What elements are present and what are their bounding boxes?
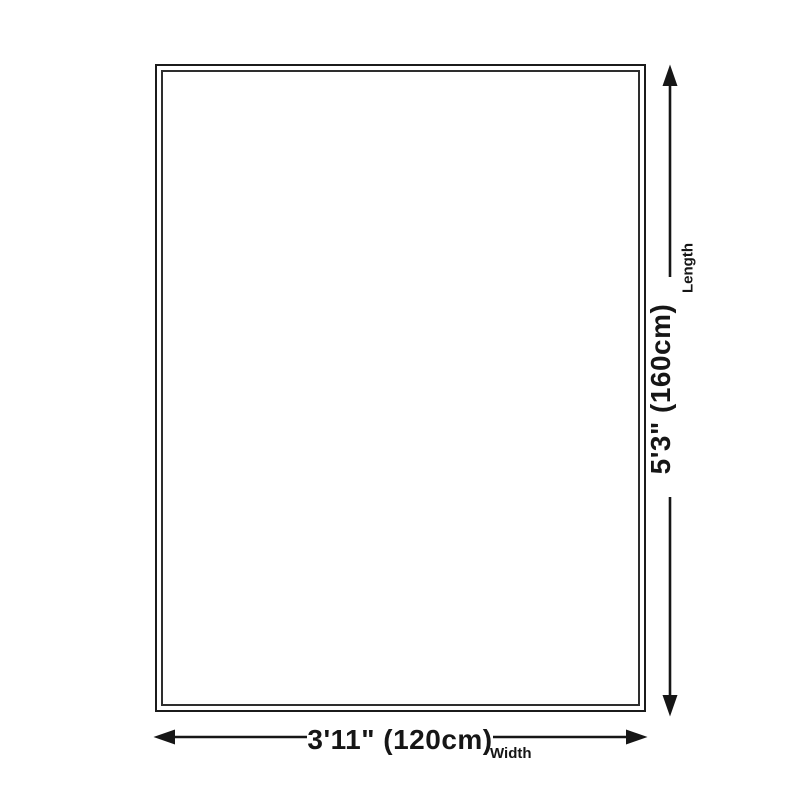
- length-dimension-label: Length: [681, 243, 696, 293]
- width-dimension-value: 3'11" (120cm): [307, 726, 492, 754]
- size-diagram: 5'3" (160cm) Length 3'11" (120cm) Width: [0, 0, 800, 800]
- width-dimension-label: Width: [490, 746, 532, 761]
- right-arrowhead-icon: [627, 730, 647, 744]
- up-arrowhead-icon: [663, 66, 677, 86]
- down-arrowhead-icon: [663, 696, 677, 716]
- dimension-arrows: [0, 0, 800, 800]
- left-arrowhead-icon: [155, 730, 175, 744]
- length-dimension-value: 5'3" (160cm): [647, 304, 675, 475]
